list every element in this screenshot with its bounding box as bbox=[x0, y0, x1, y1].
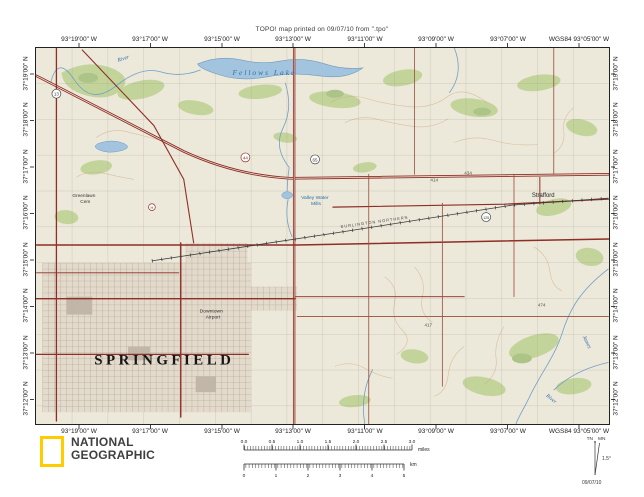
natgeo-logo: NATIONAL GEOGRAPHIC bbox=[40, 436, 155, 467]
lake-label-fellows: Fellows Lake bbox=[231, 68, 296, 77]
km-tick-4: 4 bbox=[371, 473, 374, 479]
miles-tick-1: 0.5 bbox=[269, 439, 276, 445]
scale-bar: 0.0 0.5 1.0 1.5 2.0 2.5 3.0 miles 0 1 2 … bbox=[236, 438, 436, 485]
city-label-springfield: SPRINGFIELD bbox=[94, 352, 234, 368]
miles-unit: miles bbox=[418, 447, 430, 453]
km-tick-3: 3 bbox=[339, 473, 342, 479]
spot-elevation-474: 474 bbox=[538, 303, 546, 308]
valley-water-mills-label-1: Valley Water bbox=[301, 195, 329, 201]
km-tick-2: 2 bbox=[307, 473, 310, 479]
natgeo-wordmark-line2: GEOGRAPHIC bbox=[71, 449, 155, 462]
map-canvas[interactable]: 13 44 65 125 H SPRINGFIELD Fellows Lake … bbox=[36, 48, 609, 424]
miles-tick-4: 2.0 bbox=[353, 439, 360, 445]
declination-diagram: TN MN 1.5° 09/07/10 bbox=[576, 430, 634, 493]
magnetic-north-line bbox=[595, 443, 600, 475]
natgeo-wordmark-line1: NATIONAL bbox=[71, 436, 155, 449]
spot-elevation-414: 414 bbox=[430, 177, 438, 182]
lat-label-right-7: 37°12'00" N bbox=[612, 364, 621, 434]
downtown-airport-label-2: Airport bbox=[206, 315, 221, 321]
miles-tick-5: 2.5 bbox=[381, 439, 388, 445]
north-star-icon bbox=[594, 441, 596, 443]
greenlawn-cem-label-1: Greenlawn bbox=[72, 193, 95, 199]
declination-angle: 1.5° bbox=[602, 456, 611, 462]
km-unit: km bbox=[410, 462, 417, 468]
km-ruler: 0 1 2 3 4 5 km bbox=[243, 462, 417, 479]
miles-tick-0: 0.0 bbox=[241, 439, 248, 445]
hospital-icon: H bbox=[150, 205, 153, 210]
valley-water-mills-pond bbox=[282, 192, 293, 199]
map-frame: 13 44 65 125 H SPRINGFIELD Fellows Lake … bbox=[35, 47, 610, 425]
magnetic-north-label: MN bbox=[598, 436, 606, 442]
greenlawn-cem-label-2: Cem bbox=[80, 199, 90, 205]
km-tick-5: 5 bbox=[403, 473, 406, 479]
spot-elevation-434: 434 bbox=[464, 170, 472, 175]
left-ticks bbox=[30, 47, 34, 425]
true-north-label: TN bbox=[587, 436, 594, 442]
strafford-label: Strafford bbox=[532, 193, 555, 199]
print-info: TOPO! map printed on 09/07/10 from ".tpo… bbox=[0, 26, 644, 33]
print-date: 09/07/10 bbox=[582, 480, 602, 486]
valley-water-mills-label-2: Mills bbox=[311, 201, 321, 207]
shield-125: 125 bbox=[483, 216, 489, 220]
km-tick-0: 0 bbox=[243, 473, 246, 479]
km-tick-1: 1 bbox=[275, 473, 278, 479]
miles-ruler: 0.0 0.5 1.0 1.5 2.0 2.5 3.0 miles bbox=[241, 439, 431, 453]
shield-13: 13 bbox=[54, 92, 59, 97]
topo-print-page: TOPO! map printed on 09/07/10 from ".tpo… bbox=[0, 0, 644, 497]
miles-tick-2: 1.0 bbox=[297, 439, 304, 445]
miles-tick-6: 3.0 bbox=[409, 439, 416, 445]
shield-65: 65 bbox=[313, 157, 318, 162]
spot-elevation-417: 417 bbox=[424, 323, 432, 328]
shield-44: 44 bbox=[243, 155, 248, 160]
downtown-airport-label-1: Downtown bbox=[200, 309, 223, 315]
miles-tick-3: 1.5 bbox=[325, 439, 332, 445]
natgeo-frame-icon bbox=[40, 436, 64, 467]
lat-label-left-7: 37°12'00" N bbox=[22, 364, 31, 434]
